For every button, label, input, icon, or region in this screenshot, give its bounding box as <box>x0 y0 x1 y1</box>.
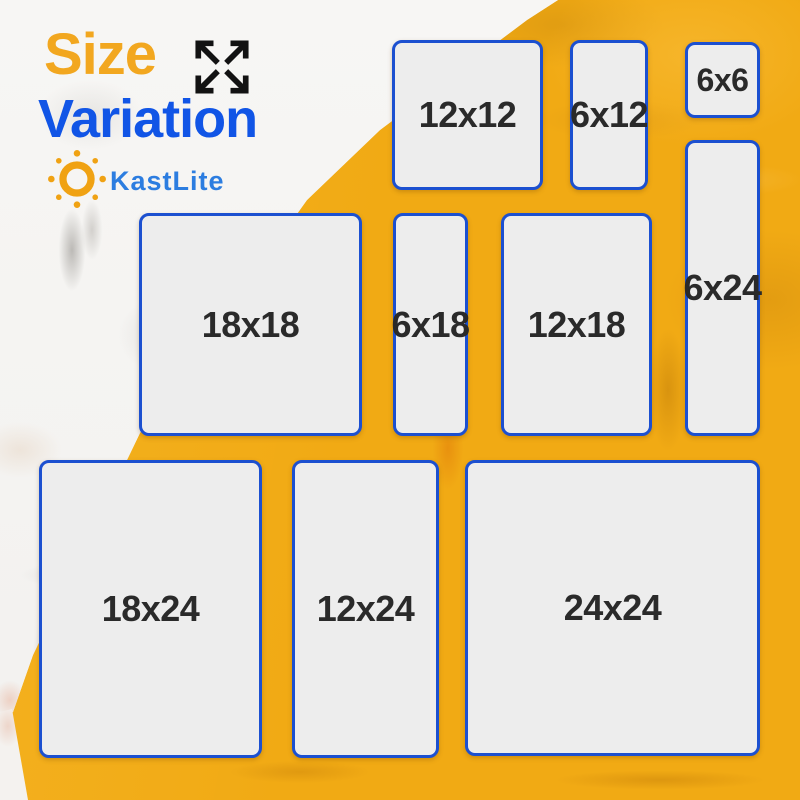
size-label-6x12: 6x12 <box>570 94 648 136</box>
size-label-6x6: 6x6 <box>697 62 749 99</box>
size-box-12x24: 12x24 <box>292 460 439 758</box>
size-label-12x12: 12x12 <box>419 94 517 136</box>
size-box-6x18: 6x18 <box>393 213 468 436</box>
size-box-6x12: 6x12 <box>570 40 648 190</box>
size-box-12x12: 12x12 <box>392 40 543 190</box>
size-box-12x18: 12x18 <box>501 213 652 436</box>
brand-name: KastLite <box>110 166 225 197</box>
size-label-12x24: 12x24 <box>317 588 415 630</box>
size-label-18x24: 18x24 <box>102 588 200 630</box>
size-label-6x18: 6x18 <box>391 304 469 346</box>
title-variation: Variation <box>38 92 257 146</box>
size-label-12x18: 12x18 <box>528 304 626 346</box>
size-box-18x18: 18x18 <box>139 213 362 436</box>
size-variation-infographic: Size Variation KastLite 12x12 6x12 6x6 6… <box>0 0 800 800</box>
size-label-6x24: 6x24 <box>683 267 761 309</box>
size-label-18x18: 18x18 <box>202 304 300 346</box>
size-label-24x24: 24x24 <box>564 587 662 629</box>
size-box-24x24: 24x24 <box>465 460 760 756</box>
sun-icon <box>46 148 108 210</box>
title-size: Size <box>44 26 156 84</box>
size-box-6x24: 6x24 <box>685 140 760 436</box>
size-box-6x6: 6x6 <box>685 42 760 118</box>
brand-logo: KastLite <box>44 146 304 212</box>
size-box-18x24: 18x24 <box>39 460 262 758</box>
